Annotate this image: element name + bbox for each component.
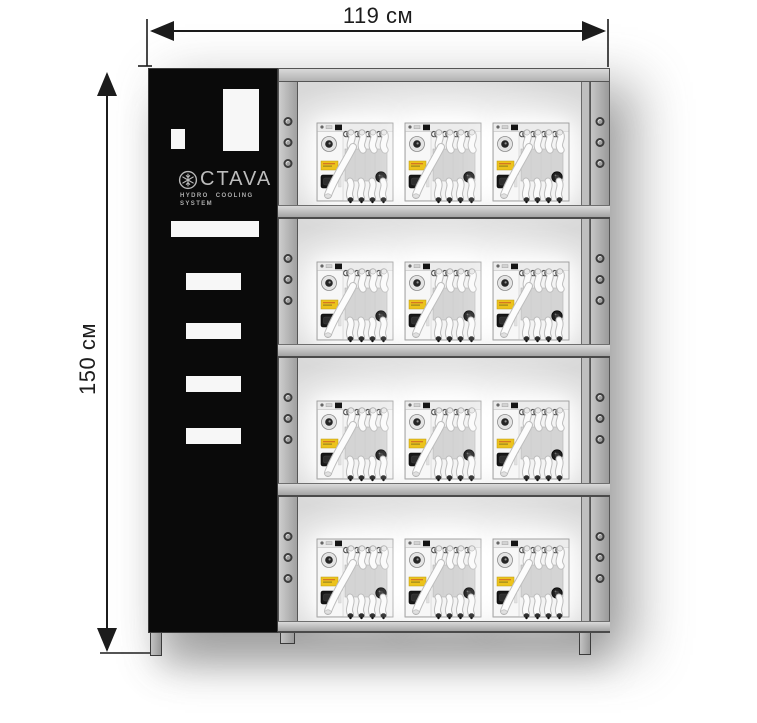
mounting-hole — [284, 254, 293, 263]
shelf-bar — [278, 344, 610, 358]
mounting-hole — [596, 553, 605, 562]
mounting-hole — [596, 275, 605, 284]
panel-vent — [186, 273, 241, 290]
cabinet: CTAVA HYDRO COOLING SYSTEM — [148, 68, 610, 633]
mounting-hole — [596, 574, 605, 583]
mounting-hole — [596, 254, 605, 263]
shelf-section — [298, 82, 581, 205]
rack-bottom-bar — [278, 621, 610, 633]
mounting-hole — [596, 435, 605, 444]
rack-frame — [278, 68, 610, 633]
cooling-module — [315, 531, 395, 621]
brand-logo: CTAVA — [178, 168, 272, 191]
product-dimension-diagram: 119 см 150 см — [0, 0, 757, 723]
cooling-module — [315, 393, 395, 483]
mounting-hole — [596, 159, 605, 168]
panel-vent — [223, 89, 259, 151]
cooling-module — [403, 254, 483, 344]
panel-vent — [186, 323, 241, 339]
cooling-module — [403, 115, 483, 205]
shelf-bar — [278, 205, 610, 219]
mounting-hole — [596, 393, 605, 402]
mounting-hole — [596, 414, 605, 423]
mounting-hole — [284, 553, 293, 562]
mounting-hole — [284, 296, 293, 305]
width-dimension-label: 119 см — [152, 3, 604, 29]
mounting-hole — [284, 393, 293, 402]
mounting-hole — [596, 138, 605, 147]
cooling-module — [491, 531, 571, 621]
mounting-hole — [284, 159, 293, 168]
brand-wordmark: CTAVA — [200, 168, 272, 191]
mounting-hole — [596, 296, 605, 305]
shelf-section — [298, 358, 581, 483]
cooling-module — [491, 393, 571, 483]
cabinet-leg — [579, 633, 591, 655]
mounting-hole — [596, 532, 605, 541]
panel-vent — [171, 129, 185, 149]
front-panel: CTAVA HYDRO COOLING SYSTEM — [148, 68, 278, 633]
shelf-bar — [278, 483, 610, 497]
cooling-module — [403, 393, 483, 483]
snowflake-icon — [178, 170, 198, 190]
height-dimension-label: 150 см — [75, 313, 101, 405]
panel-vent — [186, 428, 241, 444]
mounting-hole — [284, 275, 293, 284]
mounting-hole — [284, 138, 293, 147]
mounting-hole — [284, 574, 293, 583]
panel-vent — [186, 376, 241, 392]
mounting-hole — [284, 414, 293, 423]
cooling-module — [491, 254, 571, 344]
mounting-hole — [284, 117, 293, 126]
cabinet-leg — [280, 633, 295, 644]
shelf-section — [298, 219, 581, 344]
cooling-module — [403, 531, 483, 621]
cooling-module — [491, 115, 571, 205]
shelf-section — [298, 497, 581, 621]
panel-vent — [171, 221, 259, 237]
mounting-hole — [596, 117, 605, 126]
cooling-module — [315, 115, 395, 205]
rack-top-bar — [278, 68, 610, 82]
brand-tagline: HYDRO COOLING SYSTEM — [180, 192, 254, 208]
mounting-hole — [284, 435, 293, 444]
cabinet-leg — [150, 633, 162, 656]
mounting-hole — [284, 532, 293, 541]
cooling-module — [315, 254, 395, 344]
